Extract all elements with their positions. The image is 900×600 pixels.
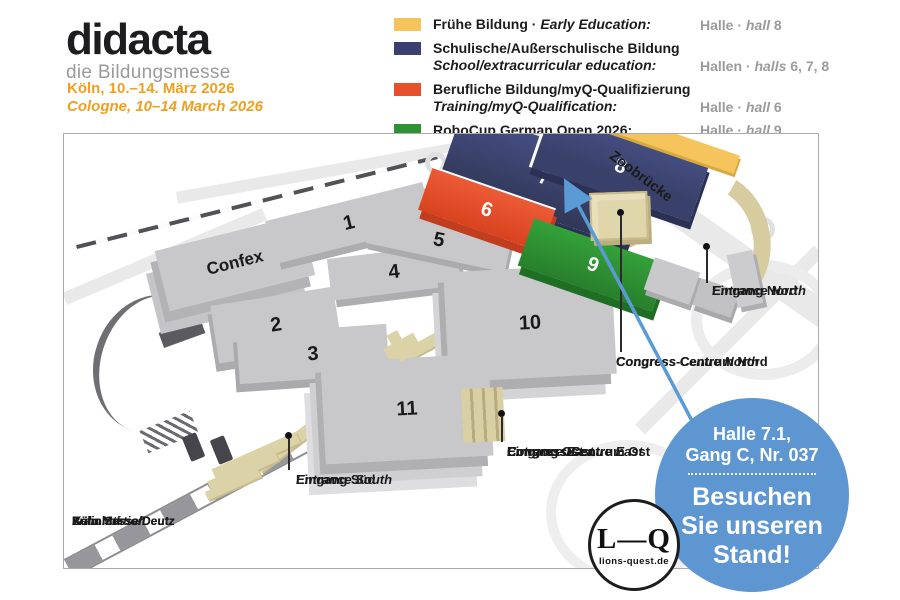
event-date-german: Köln, 10.–14. März 2026 (67, 80, 263, 98)
didacta-logo: didacta (66, 18, 231, 62)
lions-quest-logo: L—Q lions-quest.de (588, 499, 680, 591)
legend-swatch-school-education (394, 42, 421, 55)
service-building (182, 432, 206, 462)
legend-label-en: Early Education: (540, 16, 650, 32)
event-dates: Köln, 10.–14. März 2026 Cologne, 10–14 M… (67, 80, 263, 116)
lq-monogram: L—Q (597, 524, 671, 554)
legend-row-training: Berufliche Bildung/myQ-QualifizierungTra… (394, 81, 874, 116)
entrance-east-leader (501, 416, 503, 442)
badge-cta-line3: Stand! (713, 541, 791, 570)
legend-row-school-education: Schulische/Außerschulische BildungSchool… (394, 40, 874, 75)
legend-label-de: Schulische/Außerschulische Bildung (433, 40, 680, 56)
entrance-north-leader (706, 249, 708, 283)
lq-url: lions-quest.de (599, 556, 669, 567)
legend-label-en: School/extracurricular education: (433, 57, 725, 75)
legend-row-early-education: Frühe Bildung · Early Education: Halle ·… (394, 16, 874, 34)
congress-north-leader (620, 216, 622, 352)
entrance-south-leader (288, 439, 290, 470)
stand-badge: Halle 7.1, Gang C, Nr. 037 Besuchen Sie … (655, 398, 849, 592)
legend-swatch-early-education (394, 18, 421, 31)
congress-north-cube (589, 191, 649, 241)
badge-cta-line1: Besuchen (692, 483, 811, 512)
legend-label-de: Frühe Bildung · (433, 16, 536, 32)
railway-west-curve (75, 279, 232, 449)
legend-swatch-training (394, 83, 421, 96)
legend-hall-training: Halle · hall 6 (700, 99, 782, 115)
entrance-south-marker (285, 432, 292, 439)
badge-cta-line2: Sie unseren (681, 512, 823, 541)
badge-location-line2: Gang C, Nr. 037 (685, 445, 818, 466)
didacta-fairground-map-page: didacta die Bildungsmesse Köln, 10.–14. … (0, 0, 900, 600)
legend-label-en: Training/myQ-Qualification: (433, 98, 725, 116)
badge-dotted-divider (688, 473, 816, 475)
event-date-english: Cologne, 10–14 March 2026 (67, 98, 263, 116)
congress-north-marker (617, 209, 624, 216)
legend-hall-school-education: Hallen · halls 6, 7, 8 (700, 58, 829, 74)
legend-label-de: Berufliche Bildung/myQ-Qualifizierung (433, 81, 690, 97)
legend-hall-early-education: Halle · hall 8 (700, 17, 782, 33)
hall-8-early-education-band (559, 133, 740, 174)
badge-location-line1: Halle 7.1, (713, 424, 791, 445)
legend: Frühe Bildung · Early Education: Halle ·… (394, 16, 874, 145)
brand-block: didacta die Bildungsmesse (66, 18, 231, 84)
